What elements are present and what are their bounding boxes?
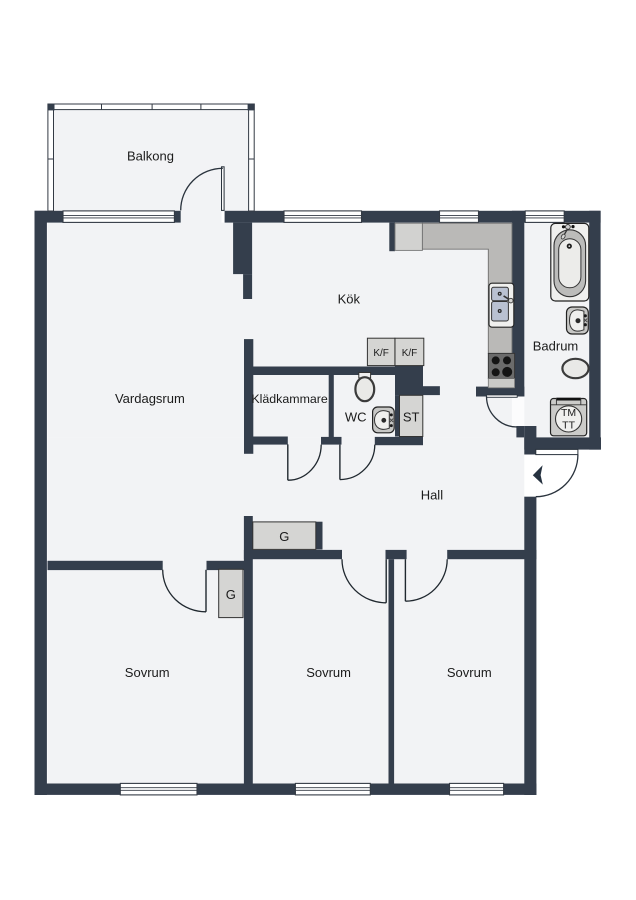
svg-text:Vardagsrum: Vardagsrum — [115, 391, 185, 406]
svg-text:ST: ST — [403, 410, 420, 425]
svg-text:TM: TM — [561, 407, 576, 419]
svg-text:Badrum: Badrum — [533, 339, 579, 354]
svg-text:Klädkammare: Klädkammare — [251, 392, 328, 406]
svg-text:Balkong: Balkong — [127, 149, 174, 164]
svg-text:Sovrum: Sovrum — [125, 665, 170, 680]
svg-text:G: G — [279, 529, 289, 544]
svg-text:Kök: Kök — [338, 292, 361, 307]
svg-text:K/F: K/F — [402, 348, 418, 359]
svg-text:TT: TT — [562, 419, 575, 431]
svg-text:G: G — [226, 587, 236, 602]
svg-text:Sovrum: Sovrum — [447, 665, 492, 680]
svg-text:K/F: K/F — [373, 348, 389, 359]
svg-text:WC: WC — [345, 410, 367, 425]
svg-text:Sovrum: Sovrum — [306, 665, 351, 680]
svg-text:Hall: Hall — [421, 487, 444, 502]
